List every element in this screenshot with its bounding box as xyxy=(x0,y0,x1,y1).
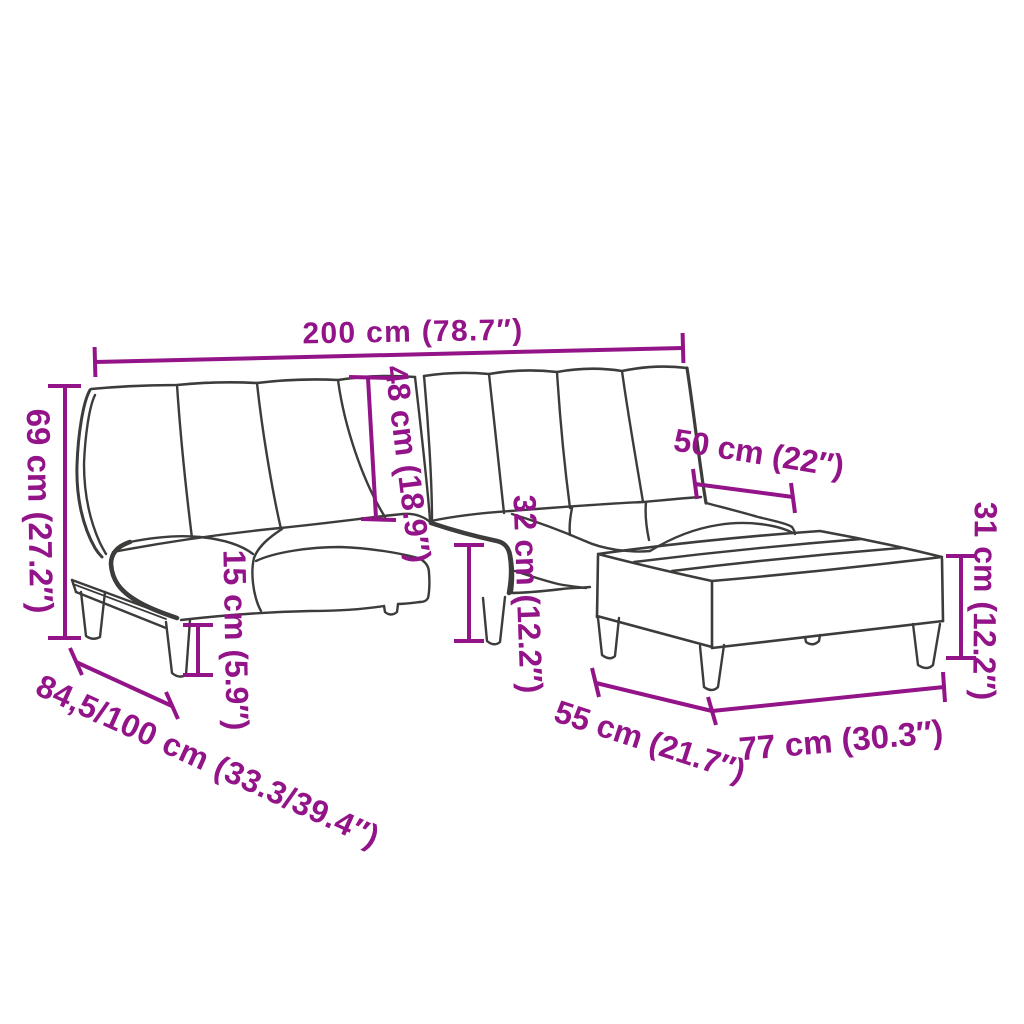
svg-text:31 cm (12.2″): 31 cm (12.2″) xyxy=(966,502,1004,701)
svg-text:15 cm (5.9″): 15 cm (5.9″) xyxy=(216,549,255,730)
svg-text:200 cm (78.7″): 200 cm (78.7″) xyxy=(302,314,524,351)
svg-text:32 cm (12.2″): 32 cm (12.2″) xyxy=(507,494,550,694)
svg-text:69 cm (27.2″): 69 cm (27.2″) xyxy=(20,408,61,613)
